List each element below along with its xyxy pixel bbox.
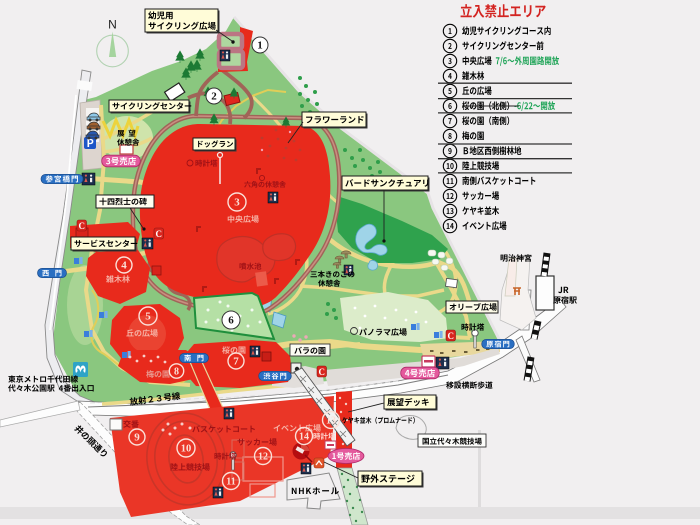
svg-text:11: 11 <box>226 476 235 487</box>
svg-text:C: C <box>448 331 455 341</box>
svg-text:14: 14 <box>299 431 309 442</box>
svg-text:C: C <box>319 367 326 377</box>
svg-text:C: C <box>156 229 163 239</box>
svg-text:4: 4 <box>121 260 127 272</box>
svg-text:12: 12 <box>258 451 268 462</box>
svg-text:8: 8 <box>174 366 179 377</box>
svg-text:5: 5 <box>145 311 151 323</box>
svg-text:3: 3 <box>234 197 240 209</box>
svg-text:C: C <box>79 221 86 231</box>
svg-text:10: 10 <box>181 444 192 455</box>
svg-text:13: 13 <box>326 415 336 426</box>
svg-text:6: 6 <box>228 315 234 327</box>
svg-text:N: N <box>108 18 117 32</box>
svg-text:1: 1 <box>257 40 263 52</box>
svg-text:7: 7 <box>233 356 239 368</box>
svg-text:2: 2 <box>211 91 217 103</box>
svg-text:9: 9 <box>134 432 140 444</box>
